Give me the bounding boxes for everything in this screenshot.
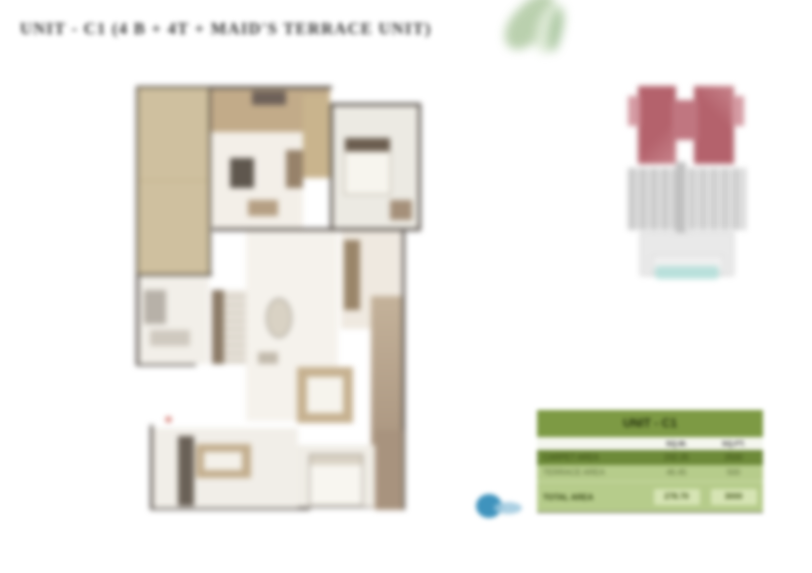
keyplan-spine (676, 162, 686, 237)
kitchen-counter (344, 240, 360, 310)
value-box: 278.70 (654, 489, 700, 505)
keyplan-highlight-tab (732, 96, 744, 126)
wall-segment (178, 436, 194, 506)
keyplan-wing-right (688, 168, 746, 230)
balcony-strip (375, 430, 403, 510)
table-row-total: TOTAL AREA 278.70 3000 (537, 482, 763, 512)
wardrobe (230, 158, 254, 188)
col-header-sqft: SQ.FT. (705, 438, 762, 450)
furniture-top (204, 452, 242, 470)
keyplan-highlight-left (638, 86, 676, 164)
table (266, 298, 292, 338)
row-sqm: 232.25 (648, 450, 705, 465)
dresser (286, 150, 303, 188)
keyplan-caption-badge (655, 266, 719, 279)
value-box: 3000 (711, 489, 757, 505)
key-plan (618, 74, 766, 294)
upper-door (252, 91, 286, 105)
terrace (139, 89, 208, 273)
col-header-sqm: SQ.M. (648, 438, 705, 450)
furniture (248, 200, 278, 216)
col-header-label (537, 438, 648, 450)
table-row: CARPET AREA 232.25 2500 (537, 450, 763, 465)
area-table-title: UNIT - C1 (537, 410, 763, 438)
table-row: TERRACE AREA 46.45 500 (537, 465, 763, 482)
wall (418, 103, 421, 231)
bath-fixture (150, 330, 190, 346)
row-sqm: 46.45 (648, 465, 705, 481)
stair-wall (212, 290, 224, 364)
terrace-divider (139, 180, 208, 181)
keyplan-highlight-center (672, 100, 698, 140)
area-table: UNIT - C1 SQ.M. SQ.FT. CARPET AREA 232.2… (537, 410, 763, 513)
furniture (258, 352, 278, 364)
row-label: TERRACE AREA (537, 465, 648, 481)
row-sqft: 2500 (705, 450, 762, 465)
area-table-column-headers: SQ.M. SQ.FT. (537, 438, 763, 450)
furniture (390, 200, 412, 220)
plan-marker (166, 417, 171, 422)
bed-sheet (307, 377, 343, 413)
bath-fixture (144, 290, 166, 324)
row-sqm: 278.70 (648, 489, 705, 505)
keyplan-wing-left (628, 168, 680, 230)
north-arrow-tail (494, 502, 522, 514)
keyplan-highlight-tab (628, 96, 640, 126)
tan-column (303, 95, 330, 178)
north-arrow-icon (468, 488, 528, 528)
row-sqft: 3000 (705, 489, 762, 505)
row-label: CARPET AREA (537, 450, 648, 465)
keyplan-highlight-right (694, 86, 734, 164)
row-sqft: 500 (705, 465, 762, 481)
bed-pillows (310, 455, 362, 465)
bed (345, 152, 390, 194)
bed-headboard (345, 138, 390, 152)
row-label: TOTAL AREA (537, 493, 648, 502)
